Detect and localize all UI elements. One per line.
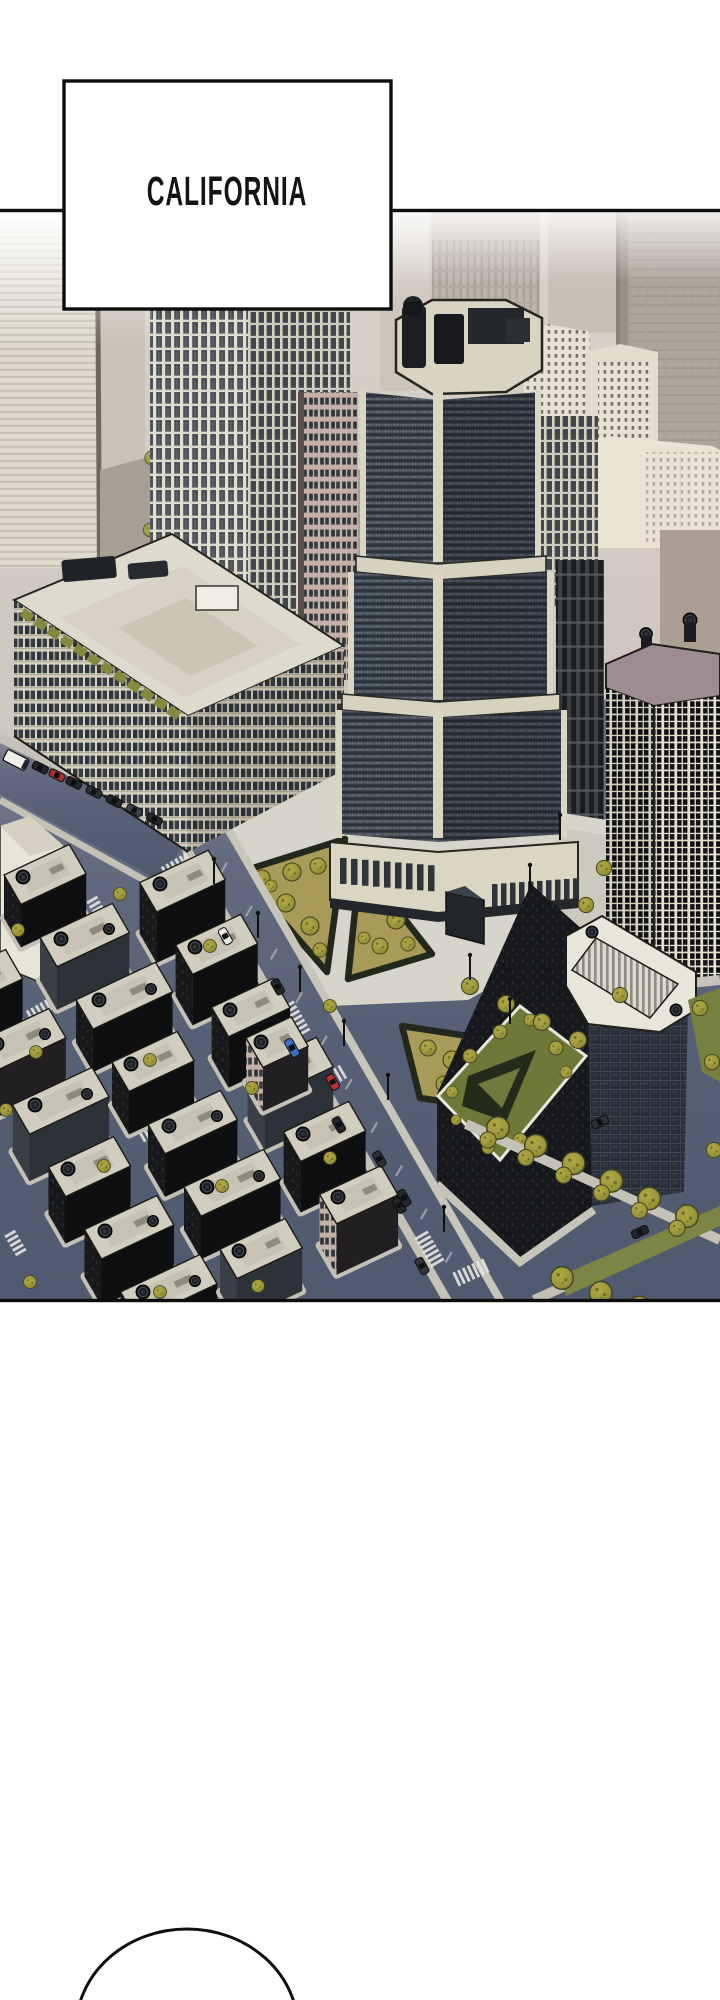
svg-text:CALIFORNIA: CALIFORNIA bbox=[147, 169, 308, 215]
